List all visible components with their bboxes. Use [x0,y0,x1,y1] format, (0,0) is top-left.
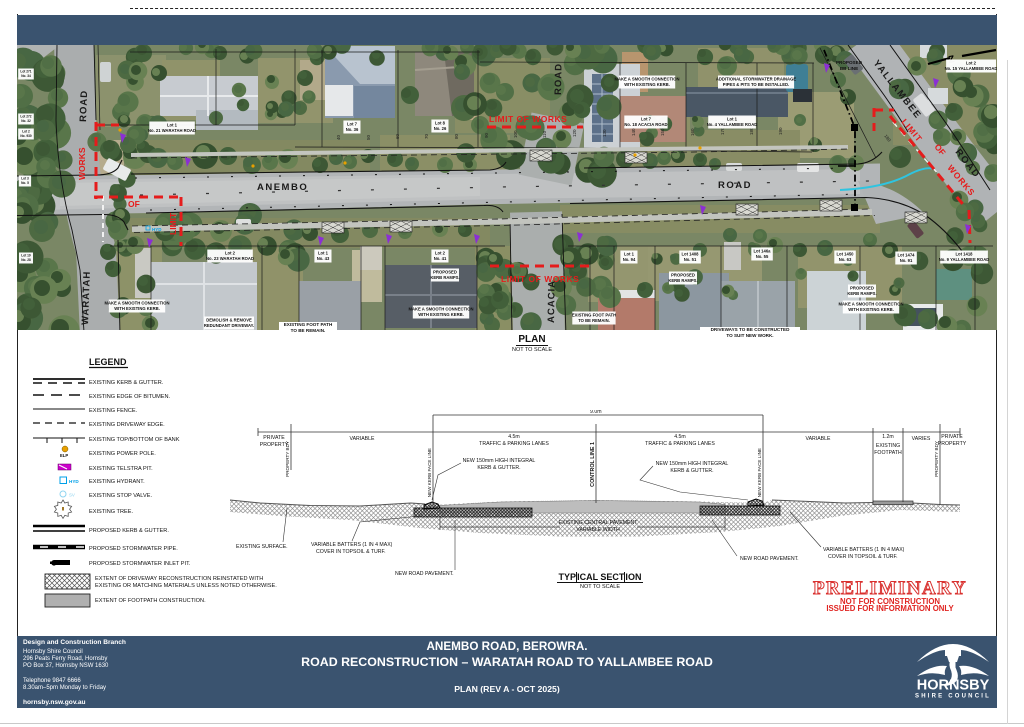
svg-text:WITH EXISTING KERB.: WITH EXISTING KERB. [848,307,894,312]
svg-text:PRIVATE: PRIVATE [941,434,963,440]
svg-text:ROAD: ROAD [718,180,752,191]
svg-text:PROPOSED KERB & GUTTER.: PROPOSED KERB & GUTTER. [89,528,169,534]
svg-text:No. 91: No. 91 [900,258,913,263]
svg-text:PROPERTY: PROPERTY [938,441,967,447]
svg-text:NEW 150mm HIGH INTEGRAL: NEW 150mm HIGH INTEGRAL [656,461,729,467]
svg-text:OF: OF [128,199,140,209]
svg-text:DEMOLISH & REMOVE: DEMOLISH & REMOVE [206,318,252,323]
svg-text:No. 51: No. 51 [684,257,697,262]
svg-text:EXISTING CENTRAL PAVEMENT: EXISTING CENTRAL PAVEMENT [559,520,639,526]
svg-text:MAKE A SMOOTH CONNECTION: MAKE A SMOOTH CONNECTION [614,77,679,82]
svg-text:No. 32: No. 32 [21,119,31,123]
svg-text:VARIES: VARIES [912,436,931,442]
svg-text:40: 40 [336,134,341,140]
svg-text:NEW ROAD PAVEMENT.: NEW ROAD PAVEMENT. [740,556,799,562]
svg-text:4.5m: 4.5m [508,434,520,440]
svg-text:Lot 1450: Lot 1450 [837,252,855,257]
svg-text:PRIVATE: PRIVATE [263,435,285,441]
svg-text:HYD: HYD [152,227,162,232]
svg-text:BB LINE: BB LINE [840,66,858,71]
svg-text:Lot 146a: Lot 146a [754,249,772,254]
svg-text:EXISTING FENCE.: EXISTING FENCE. [89,408,138,414]
svg-text:PROPERTY BDY: PROPERTY BDY [934,441,939,477]
svg-text:EXISTING HYDRANT.: EXISTING HYDRANT. [89,479,145,485]
svg-text:SV: SV [69,493,75,498]
svg-text:TRAFFIC & PARKING LANES: TRAFFIC & PARKING LANES [645,441,715,447]
svg-text:HORNSBY: HORNSBY [917,678,990,694]
svg-text:ELP: ELP [60,453,68,458]
svg-text:70: 70 [424,133,429,139]
svg-text:No. 9 YALLAMBEE ROAD: No. 9 YALLAMBEE ROAD [939,257,990,262]
svg-text:No. 15 YALLAMBEE ROAD: No. 15 YALLAMBEE ROAD [945,66,997,71]
svg-text:EXISTING POWER POLE.: EXISTING POWER POLE. [89,451,156,457]
svg-text:160: 160 [690,128,695,136]
svg-text:60: 60 [395,133,400,139]
svg-text:EXISTING KERB & GUTTER.: EXISTING KERB & GUTTER. [89,380,164,386]
svg-text:EXTENT OF FOOTPATH CONSTRUCTIO: EXTENT OF FOOTPATH CONSTRUCTION. [95,598,206,604]
svg-text:No. 63: No. 63 [839,257,852,262]
svg-text:EXISTING EDGE OF BITUMEN.: EXISTING EDGE OF BITUMEN. [89,394,171,400]
svg-text:NEW KERB FACE LINE: NEW KERB FACE LINE [757,448,762,497]
svg-text:Lot 1: Lot 1 [727,117,738,122]
svg-text:Lot 1418: Lot 1418 [956,252,974,257]
svg-text:140: 140 [631,128,636,136]
svg-text:PROPOSED: PROPOSED [850,286,874,291]
svg-text:90: 90 [484,132,489,138]
svg-text:VARIABLE WIDTH: VARIABLE WIDTH [576,527,620,533]
svg-text:No. 18 ACACIA ROAD: No. 18 ACACIA ROAD [624,122,667,127]
svg-text:KERB RAMPS.: KERB RAMPS. [668,278,697,283]
svg-text:130: 130 [602,129,607,137]
svg-text:Lot 1: Lot 1 [167,123,178,128]
svg-text:EXISTING TOP/BOTTOM OF BANK: EXISTING TOP/BOTTOM OF BANK [89,437,180,443]
svg-text:PROPERTY BDY: PROPERTY BDY [285,441,290,477]
svg-text:1.2m: 1.2m [882,434,894,440]
svg-text:No. 34: No. 34 [21,74,31,78]
svg-text:LEGEND: LEGEND [89,357,127,367]
svg-text:Lot 1474: Lot 1474 [898,253,916,258]
svg-text:Lot 2: Lot 2 [435,251,446,256]
svg-text:Lot 1: Lot 1 [318,251,329,256]
svg-text:LIMIT OF WORKS: LIMIT OF WORKS [501,274,579,284]
svg-text:ANEMBO: ANEMBO [257,182,308,193]
svg-text:KERB & GUTTER.: KERB & GUTTER. [670,468,713,474]
svg-text:50: 50 [366,134,371,140]
svg-text:TRAFFIC & PARKING LANES: TRAFFIC & PARKING LANES [479,441,549,447]
svg-text:KERB RAMPS.: KERB RAMPS. [430,275,459,280]
svg-text:EXISTING STOP VALVE.: EXISTING STOP VALVE. [89,493,152,499]
svg-text:Lot 19: Lot 19 [21,254,31,258]
svg-text:ADDITIONAL STORMWATER DRAINAGE: ADDITIONAL STORMWATER DRAINAGE [716,77,796,82]
svg-text:ROAD: ROAD [78,90,90,122]
svg-text:ROAD: ROAD [553,63,565,95]
svg-text:No. 41: No. 41 [434,256,447,261]
svg-text:FOOTPATH: FOOTPATH [874,450,902,456]
svg-text:190: 190 [778,127,783,135]
svg-text:Lot 3: Lot 3 [21,177,29,181]
svg-text:PROPOSED: PROPOSED [433,270,457,275]
svg-text:No. 28: No. 28 [21,258,31,262]
svg-text:SHIRE COUNCIL: SHIRE COUNCIL [915,694,991,700]
svg-text:Lot 2: Lot 2 [966,61,977,66]
svg-text:Lot 271: Lot 271 [20,70,31,74]
svg-text:WORKS: WORKS [77,147,87,180]
svg-text:REDUNDANT DRIVEWAY.: REDUNDANT DRIVEWAY. [204,323,254,328]
svg-text:No. 55: No. 55 [756,254,769,259]
svg-text:PIPES & PITS TO BE INSTALLED.: PIPES & PITS TO BE INSTALLED. [723,82,789,87]
svg-text:EXISTING FOOT PATH: EXISTING FOOT PATH [572,313,616,318]
svg-text:TO BE REMAIN.: TO BE REMAIN. [578,318,610,323]
svg-text:Lot 7: Lot 7 [347,122,358,127]
svg-text:EXISTING: EXISTING [876,443,900,449]
svg-text:WARATAH: WARATAH [80,271,93,325]
svg-text:KERB RAMPS.: KERB RAMPS. [847,291,876,296]
svg-text:No. 21 WARATAH ROAD: No. 21 WARATAH ROAD [148,128,196,133]
svg-text:150: 150 [660,128,665,136]
svg-text:EXISTING TREE.: EXISTING TREE. [89,509,133,515]
svg-text:Lot 2: Lot 2 [225,251,236,256]
svg-text:VARIABLE BATTERS (1 IN 4 MAX): VARIABLE BATTERS (1 IN 4 MAX) [823,547,905,553]
svg-text:Lot 272: Lot 272 [20,115,31,119]
svg-text:MAKE A SMOOTH CONNECTION: MAKE A SMOOTH CONNECTION [104,301,169,306]
svg-text:VARIABLE: VARIABLE [350,436,376,442]
svg-text:HYD: HYD [69,479,79,484]
svg-text:Lot 7: Lot 7 [641,117,652,122]
svg-text:Lot 1: Lot 1 [624,252,635,257]
svg-text:WITH EXISTING KERB.: WITH EXISTING KERB. [624,82,670,87]
svg-text:4.5m: 4.5m [674,434,686,440]
svg-text:No. 930: No. 930 [20,134,32,138]
svg-text:PROPOSED STORMWATER INLET PIT.: PROPOSED STORMWATER INLET PIT. [89,561,191,567]
svg-text:No. 36: No. 36 [346,127,359,132]
svg-text:No. 5: No. 5 [21,181,29,185]
svg-text:EXISTING TELSTRA PIT.: EXISTING TELSTRA PIT. [89,466,153,472]
svg-text:NEW KERB FACE LINE: NEW KERB FACE LINE [427,448,432,497]
svg-text:VARIABLE BATTERS (1 IN 4 MAX): VARIABLE BATTERS (1 IN 4 MAX) [311,542,393,548]
svg-text:No. 4 YALLAMBEE ROAD: No. 4 YALLAMBEE ROAD [707,122,758,127]
svg-text:No. 26: No. 26 [434,126,447,131]
svg-text:COVER IN TOPSOIL & TURF.: COVER IN TOPSOIL & TURF. [828,554,898,560]
svg-text:9.0m: 9.0m [590,410,602,415]
svg-text:No. 43: No. 43 [317,256,330,261]
svg-text:ACACIA: ACACIA [546,280,558,323]
svg-text:Lot 8: Lot 8 [435,121,446,126]
svg-text:No. 23 WARATAH ROAD: No. 23 WARATAH ROAD [206,256,254,261]
svg-text:PROPOSED STORMWATER PIPE.: PROPOSED STORMWATER PIPE. [89,546,178,552]
svg-text:VARIABLE: VARIABLE [806,436,832,442]
svg-text:EXISTING SURFACE.: EXISTING SURFACE. [236,544,288,550]
svg-text:WITH EXISTING KERB.: WITH EXISTING KERB. [418,312,464,317]
svg-text:NEW 150mm HIGH INTEGRAL: NEW 150mm HIGH INTEGRAL [463,458,536,464]
svg-text:KERB & GUTTER.: KERB & GUTTER. [477,465,520,471]
svg-text:LIMIT: LIMIT [168,212,178,235]
svg-text:WITH EXISTING KERB.: WITH EXISTING KERB. [114,306,160,311]
svg-text:PROPOSED: PROPOSED [836,60,863,65]
svg-text:Lot 1408: Lot 1408 [682,252,700,257]
svg-text:EXISTING DRIVEWAY EDGE.: EXISTING DRIVEWAY EDGE. [89,422,165,428]
svg-text:NEW ROAD PAVEMENT.: NEW ROAD PAVEMENT. [395,571,454,577]
svg-text:80: 80 [454,133,459,139]
svg-text:MAKE A SMOOTH CONNECTION: MAKE A SMOOTH CONNECTION [408,307,473,312]
svg-text:Lot 2: Lot 2 [22,130,30,134]
svg-text:No. 94: No. 94 [623,257,636,262]
svg-text:COVER IN TOPSOIL & TURF.: COVER IN TOPSOIL & TURF. [316,549,386,555]
svg-text:CONTROL LINE 1: CONTROL LINE 1 [590,442,596,487]
svg-text:LIMIT OF WORKS: LIMIT OF WORKS [489,114,567,124]
svg-text:120: 120 [572,129,577,137]
svg-text:MAKE A SMOOTH CONNECTION: MAKE A SMOOTH CONNECTION [838,302,903,307]
svg-text:110: 110 [542,130,547,138]
svg-text:100: 100 [513,130,518,138]
svg-text:PROPOSED: PROPOSED [671,273,695,278]
